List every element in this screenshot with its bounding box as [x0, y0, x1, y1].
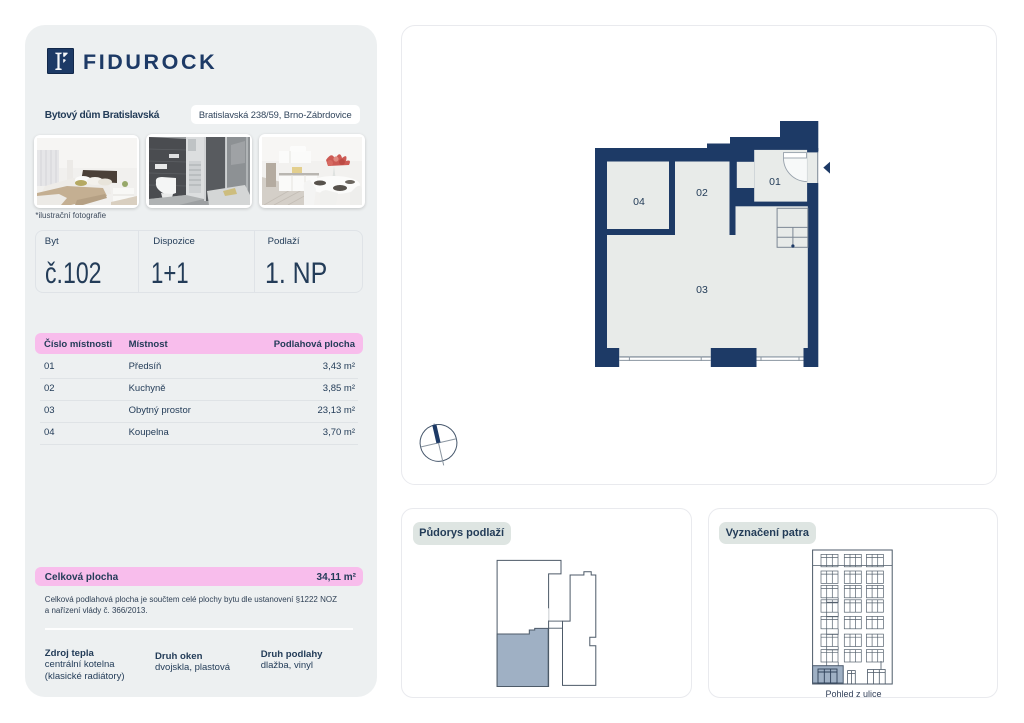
- svg-text:01: 01: [769, 176, 781, 188]
- svg-text:03: 03: [696, 284, 708, 296]
- svg-text:02: 02: [696, 187, 708, 199]
- svg-text:04: 04: [633, 196, 645, 208]
